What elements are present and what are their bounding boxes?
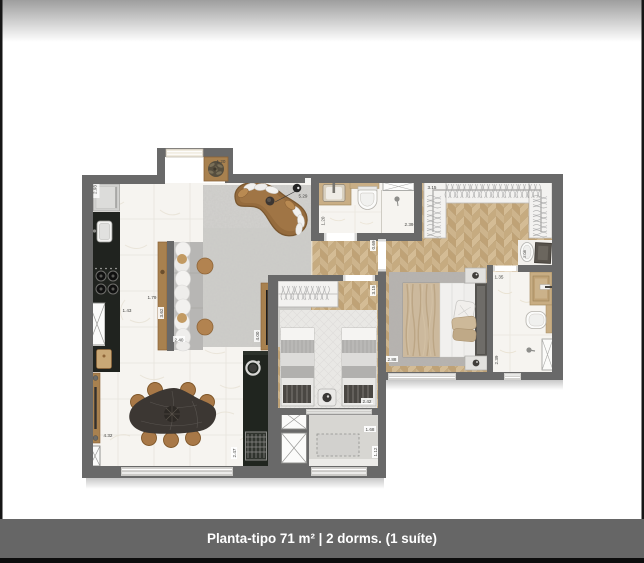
svg-text:2.39: 2.39 (494, 355, 499, 364)
svg-text:5.29: 5.29 (299, 194, 308, 199)
svg-text:3.62: 3.62 (159, 308, 164, 317)
svg-text:2.47: 2.47 (232, 448, 237, 457)
svg-text:2.08: 2.08 (522, 249, 527, 258)
svg-text:2.39: 2.39 (405, 222, 414, 227)
svg-text:1.12: 1.12 (373, 447, 378, 456)
svg-text:4.00: 4.00 (255, 331, 260, 340)
svg-text:3.15: 3.15 (428, 185, 437, 190)
svg-text:2.93: 2.93 (93, 185, 98, 194)
svg-text:0.69: 0.69 (371, 240, 376, 249)
svg-text:1.43: 1.43 (123, 308, 132, 313)
svg-text:4.32: 4.32 (104, 433, 113, 438)
svg-text:Planta-tipo 71 m² | 2 dorms. (: Planta-tipo 71 m² | 2 dorms. (1 suíte) (207, 531, 437, 546)
svg-text:2.42: 2.42 (363, 399, 372, 404)
svg-text:3.15: 3.15 (371, 285, 376, 294)
svg-text:2.88: 2.88 (388, 357, 397, 362)
svg-text:1.35: 1.35 (495, 275, 504, 280)
svg-text:1.68: 1.68 (366, 427, 375, 432)
svg-text:1.20: 1.20 (321, 216, 326, 225)
svg-text:1.79: 1.79 (148, 295, 157, 300)
svg-text:1.20: 1.20 (217, 159, 226, 164)
svg-text:2.40: 2.40 (175, 338, 184, 343)
